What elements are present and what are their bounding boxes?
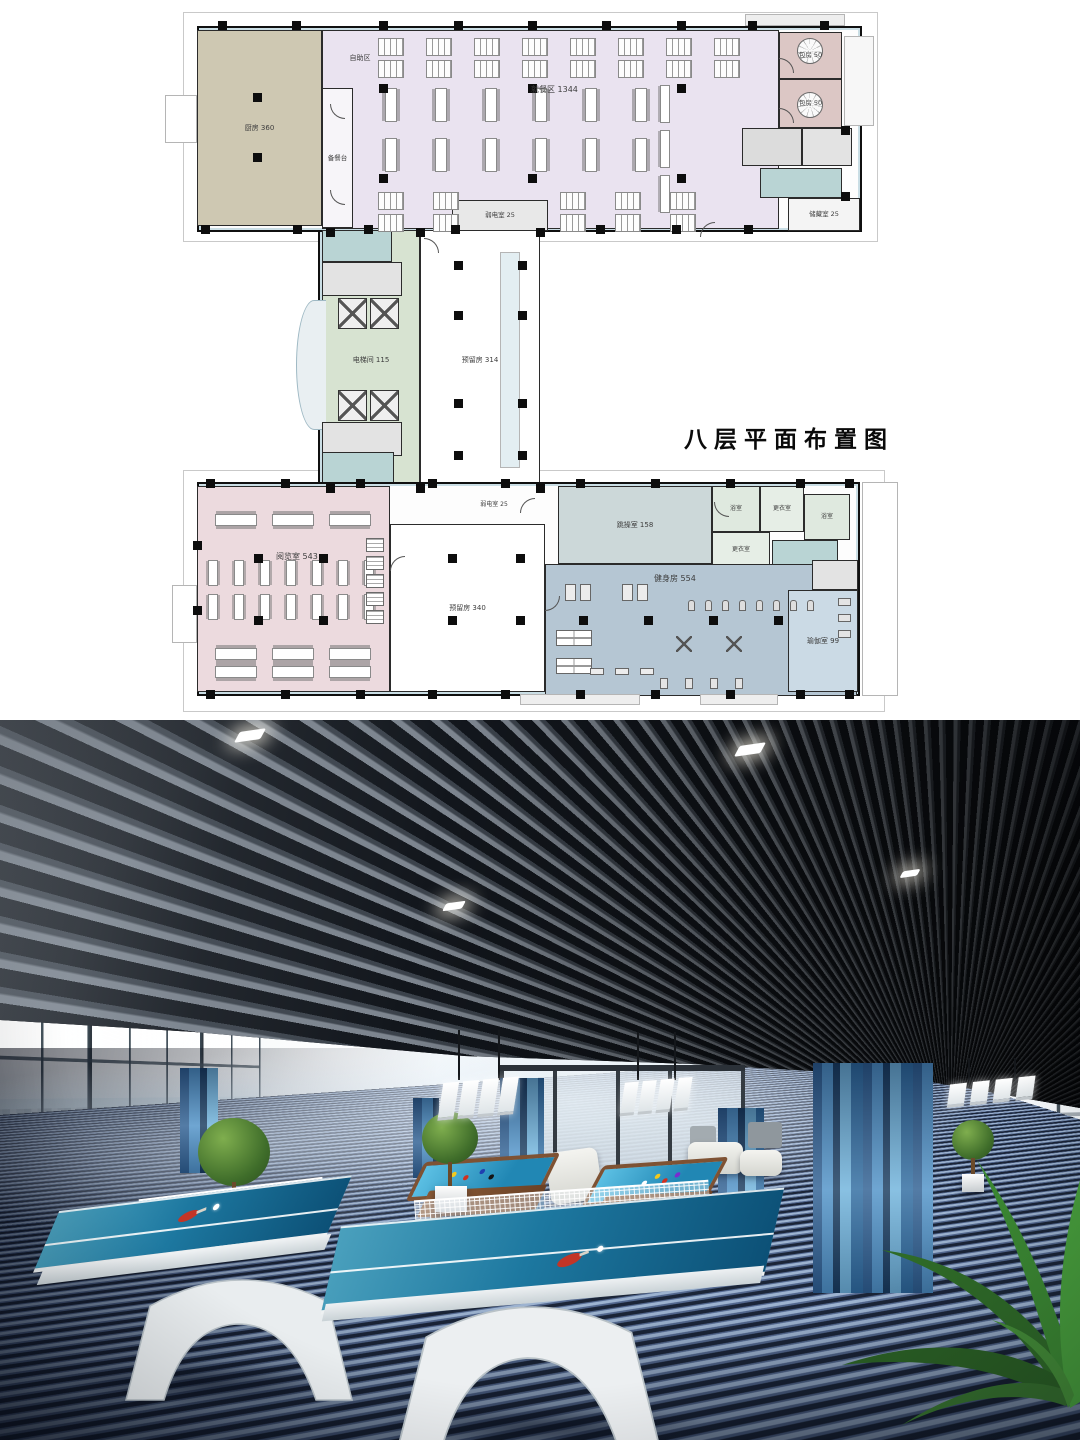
furniture-stool-icon	[710, 678, 718, 689]
room-label-reserved-room-1: 预留房 314	[462, 357, 499, 364]
furniture-rack-icon	[366, 574, 384, 588]
structural-column-icon	[193, 606, 202, 615]
furniture-tblh-icon	[329, 514, 371, 526]
elevator-icon	[370, 390, 399, 421]
furniture-tblh-icon	[215, 648, 257, 660]
room-label-aerobics-room: 跳操室 158	[617, 522, 654, 529]
furniture-cross-icon	[556, 658, 592, 674]
plan-title: 八层平面布置图	[684, 420, 894, 454]
structural-column-icon	[281, 479, 290, 488]
structural-column-icon	[518, 311, 527, 320]
floor-plan: 八层平面布置图 就餐区 1344厨房 360自助区备餐台包房 50包房 50储藏…	[0, 0, 1080, 720]
furniture-booth-icon	[560, 214, 586, 232]
structural-column-icon	[201, 225, 210, 234]
furniture-booth-icon	[378, 214, 404, 232]
structural-column-icon	[518, 399, 527, 408]
structural-column-icon	[501, 690, 510, 699]
structural-column-icon	[293, 225, 302, 234]
gym-machine-icon	[705, 600, 712, 611]
structural-column-icon	[253, 153, 262, 162]
room-kitchen: 厨房 360	[197, 30, 322, 226]
furniture-booth-icon	[474, 60, 500, 78]
room-curved-lobby	[296, 300, 326, 430]
structural-column-icon	[326, 484, 335, 493]
room-lowvolt-room-1: 弱电室 25	[452, 200, 548, 231]
furniture-tbl-icon	[635, 138, 647, 172]
structural-column-icon	[281, 690, 290, 699]
furniture-booth-icon	[714, 38, 740, 56]
room-hatch-strip-top	[745, 14, 845, 26]
structural-column-icon	[206, 690, 215, 699]
structural-column-icon	[292, 21, 301, 30]
room-hall-top-right	[742, 128, 802, 166]
structural-column-icon	[579, 616, 588, 625]
structural-column-icon	[454, 21, 463, 30]
furniture-bench-icon	[615, 668, 629, 675]
furniture-booth-icon	[666, 38, 692, 56]
room-label-gym: 健身房 554	[654, 575, 696, 583]
furniture-booth-icon	[615, 192, 641, 210]
structural-column-icon	[677, 174, 686, 183]
gym-machine-icon	[688, 600, 695, 611]
structural-column-icon	[416, 228, 425, 237]
structural-column-icon	[518, 451, 527, 460]
furniture-strip-icon	[660, 175, 670, 213]
pendant-lamp-1	[440, 1050, 520, 1120]
structural-column-icon	[518, 261, 527, 270]
structural-column-icon	[841, 126, 850, 135]
furniture-rack-icon	[366, 610, 384, 624]
furniture-booth-icon	[615, 214, 641, 232]
room-stairs-core-bottom	[322, 422, 402, 456]
treadmill-icon	[580, 584, 591, 601]
room-storage-room: 储藏室 25	[788, 198, 860, 231]
elevator-icon	[338, 298, 367, 329]
furniture-booth-icon	[522, 60, 548, 78]
structural-column-icon	[677, 21, 686, 30]
room-hatch-strip-bottom-2	[700, 694, 778, 705]
furniture-tblv-icon	[208, 594, 218, 620]
structural-column-icon	[448, 554, 457, 563]
structural-column-icon	[644, 616, 653, 625]
structural-column-icon	[501, 479, 510, 488]
gym-machine-icon	[726, 636, 742, 652]
room-label-reserved-room-2: 预留房 340	[449, 605, 486, 612]
structural-column-icon	[602, 21, 611, 30]
furniture-tbl-icon	[435, 88, 447, 122]
room-label-serving-counter: 备餐台	[328, 155, 348, 162]
furniture-booth-icon	[433, 192, 459, 210]
structural-column-icon	[193, 541, 202, 550]
elevator-icon	[338, 390, 367, 421]
room-terrace-right-top	[844, 36, 874, 126]
furniture-stool-icon	[685, 678, 693, 689]
structural-column-icon	[677, 84, 686, 93]
furniture-tblh-icon	[215, 666, 257, 678]
room-label-private-room-1: 包房 50	[799, 52, 822, 59]
furniture-tblh-icon	[272, 514, 314, 526]
pendant-lamp-2	[622, 1054, 692, 1114]
structural-column-icon	[845, 690, 854, 699]
gym-machine-icon	[676, 636, 692, 652]
room-label-dining-area: 就餐区 1344	[531, 86, 578, 94]
room-label-self-service-area: 自助区	[350, 55, 371, 62]
structural-column-icon	[451, 225, 460, 234]
room-locker-2: 更衣室	[712, 532, 770, 568]
treadmill-icon	[622, 584, 633, 601]
structural-column-icon	[536, 484, 545, 493]
furniture-strip-icon	[660, 85, 670, 123]
recreation-room-render	[0, 720, 1080, 1440]
room-terrace-right-bottom	[862, 482, 898, 696]
furniture-rack-icon	[366, 538, 384, 552]
furniture-bench-icon	[590, 668, 604, 675]
structural-column-icon	[796, 690, 805, 699]
structural-column-icon	[744, 225, 753, 234]
furniture-tblh-icon	[329, 648, 371, 660]
structural-column-icon	[416, 484, 425, 493]
furniture-booth-icon	[426, 60, 452, 78]
room-label-private-room-2: 包房 50	[799, 100, 822, 107]
furniture-booth-icon	[426, 38, 452, 56]
furniture-tblv-icon	[338, 594, 348, 620]
furniture-tblv-icon	[312, 560, 322, 586]
structural-column-icon	[379, 84, 388, 93]
room-label-locker-2: 更衣室	[732, 547, 750, 553]
furniture-tblv-icon	[286, 594, 296, 620]
furniture-rack-icon	[366, 592, 384, 606]
furniture-booth-icon	[522, 38, 548, 56]
gym-machine-icon	[773, 600, 780, 611]
furniture-tblv-icon	[286, 560, 296, 586]
pendant-lamp-row	[948, 1072, 1038, 1112]
room-bath-2: 浴室	[804, 494, 850, 540]
structural-column-icon	[845, 479, 854, 488]
ping-pong-table-2	[315, 1180, 795, 1440]
room-label-yoga-room: 瑜伽室 99	[807, 638, 839, 645]
furniture-booth-icon	[714, 60, 740, 78]
furniture-rackv-icon	[838, 614, 851, 622]
structural-column-icon	[319, 554, 328, 563]
structural-column-icon	[596, 225, 605, 234]
furniture-tblv-icon	[234, 594, 244, 620]
table-arch-base	[380, 1298, 680, 1440]
structural-column-icon	[218, 21, 227, 30]
structural-column-icon	[428, 690, 437, 699]
furniture-tbl-icon	[535, 138, 547, 172]
structural-column-icon	[528, 174, 537, 183]
room-label-reading-room: 阅览室 543	[276, 553, 318, 561]
furniture-booth-icon	[560, 192, 586, 210]
gym-machine-icon	[739, 600, 746, 611]
palm-plant	[822, 1140, 1080, 1440]
structural-column-icon	[454, 311, 463, 320]
structural-column-icon	[796, 479, 805, 488]
room-label-elevator-lobby: 电梯间 115	[353, 357, 390, 364]
furniture-tblh-icon	[329, 666, 371, 678]
gym-machine-icon	[807, 600, 814, 611]
structural-column-icon	[774, 616, 783, 625]
structural-column-icon	[516, 616, 525, 625]
room-label-locker-1: 更衣室	[773, 506, 791, 512]
room-label-lowvolt-room-2: 弱电室 25	[480, 502, 508, 508]
furniture-tbl-icon	[585, 138, 597, 172]
lounge-chair	[740, 1150, 782, 1176]
structural-column-icon	[428, 479, 437, 488]
gym-machine-icon	[722, 600, 729, 611]
furniture-tblv-icon	[338, 560, 348, 586]
structural-column-icon	[254, 616, 263, 625]
structural-column-icon	[379, 174, 388, 183]
structural-column-icon	[364, 225, 373, 234]
furniture-booth-icon	[570, 38, 596, 56]
structural-column-icon	[576, 479, 585, 488]
room-stairs-core-top	[322, 262, 402, 296]
furniture-tbl-icon	[485, 138, 497, 172]
structural-column-icon	[254, 554, 263, 563]
furniture-tbl-icon	[635, 88, 647, 122]
structural-column-icon	[726, 690, 735, 699]
structural-column-icon	[454, 261, 463, 270]
furniture-cross-icon	[556, 630, 592, 646]
furniture-strip-icon	[660, 130, 670, 168]
structural-column-icon	[709, 616, 718, 625]
furniture-tbl-icon	[385, 138, 397, 172]
furniture-booth-icon	[474, 38, 500, 56]
room-label-kitchen: 厨房 360	[245, 125, 275, 132]
structural-column-icon	[528, 21, 537, 30]
structural-column-icon	[454, 399, 463, 408]
treadmill-icon	[565, 584, 576, 601]
structural-column-icon	[672, 225, 681, 234]
furniture-booth-icon	[618, 60, 644, 78]
furniture-booth-icon	[378, 60, 404, 78]
furniture-tblv-icon	[260, 560, 270, 586]
room-label-lowvolt-room-1: 弱电室 25	[485, 212, 515, 219]
structural-column-icon	[748, 21, 757, 30]
room-window-strip	[500, 252, 520, 468]
room-label-bath-2: 浴室	[821, 514, 833, 520]
structural-column-icon	[841, 192, 850, 201]
presentation-page: 八层平面布置图 就餐区 1344厨房 360自助区备餐台包房 50包房 50储藏…	[0, 0, 1080, 1440]
furniture-booth-icon	[670, 192, 696, 210]
furniture-booth-icon	[378, 38, 404, 56]
furniture-rackv-icon	[838, 598, 851, 606]
structural-column-icon	[454, 451, 463, 460]
treadmill-icon	[637, 584, 648, 601]
room-balcony-left-top	[165, 95, 197, 143]
structural-column-icon	[379, 21, 388, 30]
furniture-bench-icon	[640, 668, 654, 675]
furniture-tblv-icon	[208, 560, 218, 586]
room-label-storage-room: 储藏室 25	[809, 211, 839, 218]
room-restroom-top-right	[760, 168, 842, 198]
structural-column-icon	[651, 690, 660, 699]
furniture-tbl-icon	[485, 88, 497, 122]
furniture-booth-icon	[618, 38, 644, 56]
structural-column-icon	[448, 616, 457, 625]
elevator-icon	[370, 298, 399, 329]
structural-column-icon	[576, 690, 585, 699]
structural-column-icon	[726, 479, 735, 488]
structural-column-icon	[319, 616, 328, 625]
structural-column-icon	[536, 228, 545, 237]
furniture-tbl-icon	[435, 138, 447, 172]
furniture-stool-icon	[735, 678, 743, 689]
furniture-tbl-icon	[585, 88, 597, 122]
furniture-tblv-icon	[234, 560, 244, 586]
furniture-tblh-icon	[272, 648, 314, 660]
furniture-rackv-icon	[838, 630, 851, 638]
furniture-tblh-icon	[215, 514, 257, 526]
gym-machine-icon	[756, 600, 763, 611]
structural-column-icon	[820, 21, 829, 30]
furniture-rack-icon	[366, 556, 384, 570]
furniture-stool-icon	[660, 678, 668, 689]
structural-column-icon	[206, 479, 215, 488]
furniture-tblh-icon	[272, 666, 314, 678]
furniture-tbl-icon	[385, 88, 397, 122]
room-reserved-room-2: 预留房 340	[390, 524, 545, 692]
room-stairs-bottom-right	[812, 560, 858, 590]
gym-equipment	[748, 1122, 782, 1148]
room-aerobics-room: 跳操室 158	[558, 486, 712, 564]
furniture-booth-icon	[666, 60, 692, 78]
furniture-booth-icon	[570, 60, 596, 78]
furniture-booth-icon	[378, 192, 404, 210]
structural-column-icon	[356, 479, 365, 488]
room-locker-1: 更衣室	[760, 486, 804, 532]
room-label-bath-1: 浴室	[730, 506, 742, 512]
structural-column-icon	[253, 93, 262, 102]
gym-machine-icon	[790, 600, 797, 611]
structural-column-icon	[516, 554, 525, 563]
structural-column-icon	[356, 690, 365, 699]
structural-column-icon	[326, 228, 335, 237]
structural-column-icon	[651, 479, 660, 488]
